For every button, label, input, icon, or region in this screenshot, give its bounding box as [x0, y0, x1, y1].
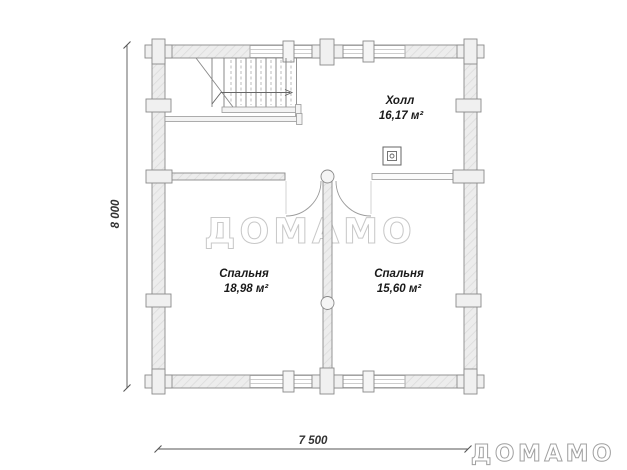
- log-joint-marker: [453, 170, 484, 183]
- log-joint-marker: [457, 39, 484, 64]
- log-joint-marker: [146, 99, 171, 112]
- window-symbol: [250, 376, 312, 388]
- log-post-marker: [321, 297, 334, 310]
- log-joint-marker: [283, 371, 294, 392]
- log-joint-marker: [146, 170, 172, 183]
- log-joint-marker: [456, 294, 481, 307]
- room-area: 15,60 м²: [377, 283, 422, 295]
- stair-risers: [212, 58, 286, 107]
- room-area: 16,17 м²: [379, 110, 424, 122]
- stair-hidden-risers: [231, 60, 291, 105]
- log-joint-marker: [312, 368, 343, 394]
- log-joint-marker: [145, 39, 172, 64]
- log-joint-marker: [146, 294, 171, 307]
- room-name: Спальня: [374, 268, 424, 280]
- room-label-bedroom-left: Спальня 18,98 м²: [219, 268, 269, 295]
- watermark-corner-logo: ДОМАМО: [471, 441, 615, 467]
- wall-left: [152, 45, 165, 388]
- log-post-marker: [321, 170, 334, 183]
- room-area: 18,98 м²: [224, 283, 269, 295]
- floor-plan-page: ДОМАМО: [0, 0, 627, 470]
- flue-marker-icon: [383, 147, 401, 165]
- log-joint-marker: [456, 99, 481, 112]
- room-name: Спальня: [219, 268, 269, 280]
- door-swing-arc: [286, 181, 321, 216]
- log-joint-marker: [145, 369, 172, 394]
- log-joint-marker: [363, 41, 374, 62]
- dimension-vertical: [124, 42, 131, 392]
- wall-right: [464, 45, 477, 388]
- window-symbol: [250, 46, 312, 58]
- dimension-vertical-label: 8 000: [110, 199, 122, 228]
- room-label-hall: Холл 16,17 м²: [379, 95, 424, 122]
- log-joint-marker: [363, 371, 374, 392]
- stair-winder-line: [196, 58, 233, 107]
- wall-bedroom-partition: [323, 180, 332, 375]
- door-swing-arc: [336, 181, 371, 216]
- log-joint-marker: [312, 39, 343, 65]
- log-joint-marker: [283, 41, 294, 62]
- staircase-symbol: [165, 58, 302, 125]
- dimension-horizontal-label: 7 500: [299, 435, 328, 447]
- floor-plan-drawing: ДОМАМО: [0, 0, 627, 470]
- log-joint-marker: [457, 369, 484, 394]
- watermark-center: ДОМАМО: [204, 212, 415, 252]
- room-name: Холл: [385, 95, 415, 107]
- stair-railing: [165, 105, 302, 125]
- room-label-bedroom-right: Спальня 15,60 м²: [374, 268, 424, 295]
- wall-hall-divider-right: [372, 174, 453, 180]
- wall-hall-divider-left: [165, 173, 285, 180]
